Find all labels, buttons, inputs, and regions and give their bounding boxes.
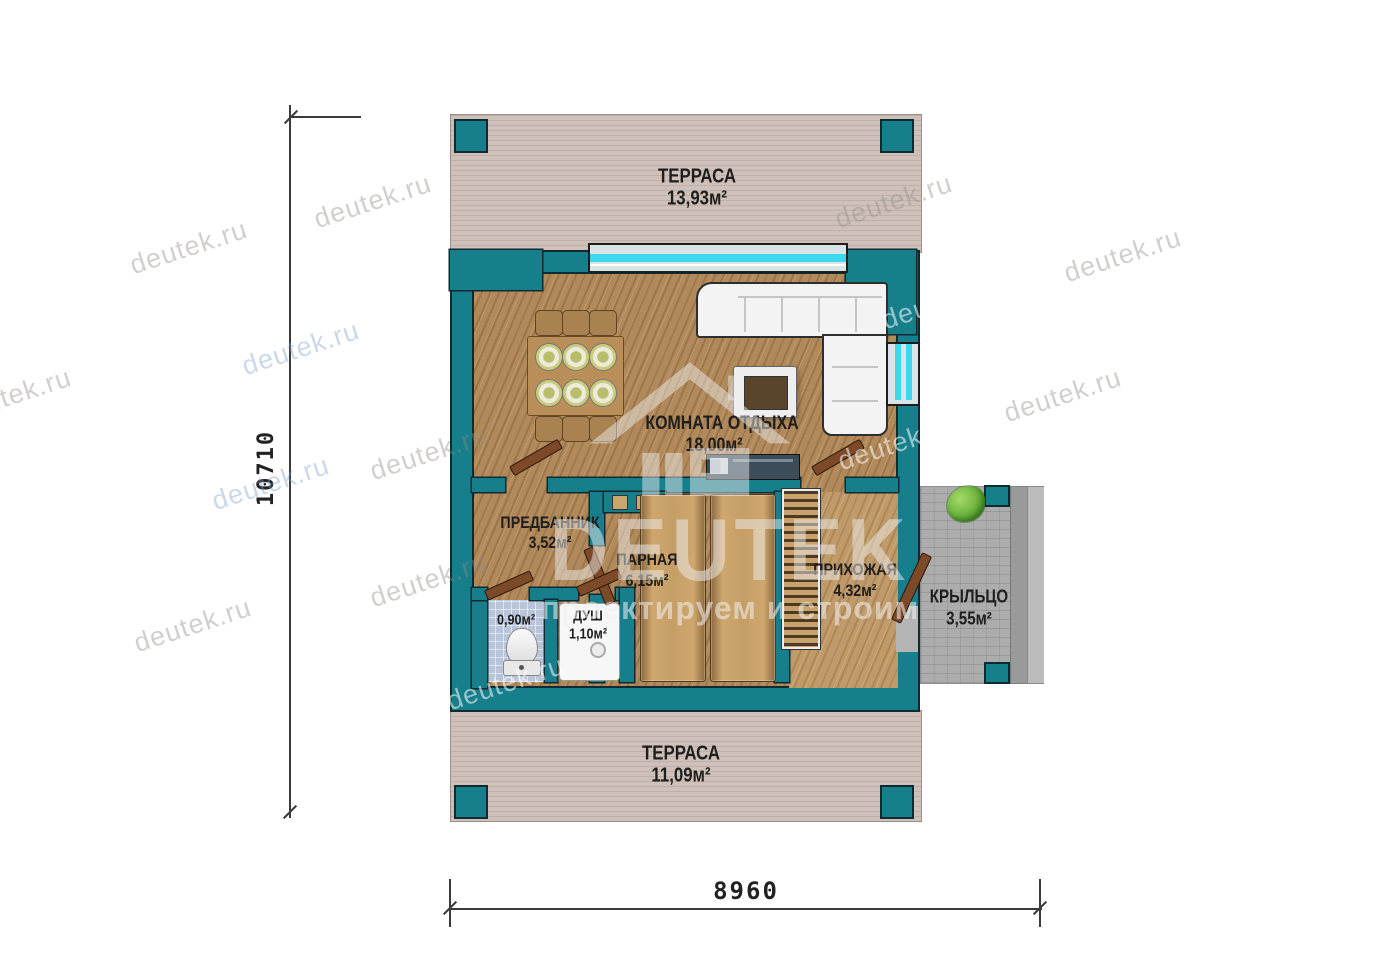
window-top [588,243,848,273]
room-area-predbannik: 3,52м² [528,533,571,553]
wall-partition [846,478,898,492]
room-label-hallway: ПРИХОЖАЯ [813,560,897,580]
porch-post [986,487,1008,505]
room-label-predbannik: ПРЕДБАННИК [500,513,599,533]
wall-corner-top-left [450,250,542,290]
sofa-backrest-line [738,296,882,298]
shower-drain [590,642,606,658]
room-area-rest-room: 18,00м² [685,435,742,457]
chair [562,310,590,336]
room-area-wc: 0,90м² [497,612,535,629]
stove-detail [733,459,793,462]
dimension-line-horizontal [450,908,1042,910]
room-area-hallway: 4,32м² [833,581,876,601]
watermark-url: deutek.ru [130,592,255,659]
room-label-terrace-bottom: ТЕРРАСА [642,743,720,766]
plate [562,379,590,407]
wall-wc-shower [545,600,557,682]
coffee-table [733,366,797,418]
sofa-cushion-divider [744,296,746,332]
dimension-tick-left [449,879,451,927]
room-area-terrace-top: 13,93м² [667,188,727,211]
wall-niche [612,495,628,510]
chair [535,310,563,336]
floor-plan-canvas: 10710 8960 [0,0,1400,975]
watermark-url: deutek.ru [0,362,75,429]
room-label-parnaya: ПАРНАЯ [617,550,678,570]
sauna-bench [710,494,776,682]
window-glass-stripe [590,254,846,262]
terrace-post [456,121,486,151]
dimension-line-vertical [289,105,291,818]
wall-wc-top [530,588,578,600]
plate [589,343,617,371]
terrace-post [882,121,912,151]
plate [589,379,617,407]
room-area-parnaya: 6,15м² [625,571,668,591]
window-glass-stripe [906,344,912,400]
room-label-porch: КРЫЛЬЦО [930,587,1008,608]
chair [589,310,617,336]
sofa-cushion-divider [781,296,783,332]
wall-shower-right [620,588,634,682]
plate [562,343,590,371]
terrace-post [882,787,912,817]
wall-partition [548,478,800,492]
dimension-label-vertical: 10710 [248,423,284,513]
sofa-cushion-divider [855,296,857,332]
plate [535,343,563,371]
toilet-button [519,665,524,670]
window-glass-stripe [895,344,901,400]
chair [562,416,590,442]
wall-wc-left [472,588,487,688]
stove-unit [706,454,800,480]
porch-step [1010,486,1028,684]
sofa-vertical [822,334,888,436]
terrace-post [456,787,486,817]
sofa-cushion-divider [818,296,820,332]
room-area-terrace-bottom: 11,09м² [651,765,710,788]
dimension-extension-top [289,116,361,118]
window-sill-line [590,264,846,266]
porch-post [986,664,1008,682]
coffee-table-top [744,376,788,410]
window-right [886,342,920,406]
dimension-label-horizontal: 8960 [686,878,806,904]
sofa-cushion-divider [832,366,878,368]
watermark-url: deutek.ru [126,214,251,281]
watermark-url: deutek.ru [1060,222,1185,289]
stove-door [710,458,728,474]
room-label-rest-room: КОМНАТА ОТДЫХА [645,413,798,435]
chair [535,416,563,442]
chair [589,416,617,442]
wall-partition [472,478,505,492]
room-label-terrace-top: ТЕРРАСА [658,166,736,189]
porch-step [1027,486,1044,684]
watermark-url: deutek.ru [310,168,435,235]
watermark-url: deutek.ru [1000,362,1125,429]
sofa-cushion-divider [832,400,878,402]
room-area-shower: 1,10м² [569,626,607,643]
room-label-shower: ДУШ [573,608,603,625]
plate [535,379,563,407]
watermark-url: deutek.ru [238,315,363,382]
dimension-tick-right [1039,879,1041,927]
room-area-porch: 3,55м² [946,609,992,630]
sofa-horizontal [696,282,888,338]
